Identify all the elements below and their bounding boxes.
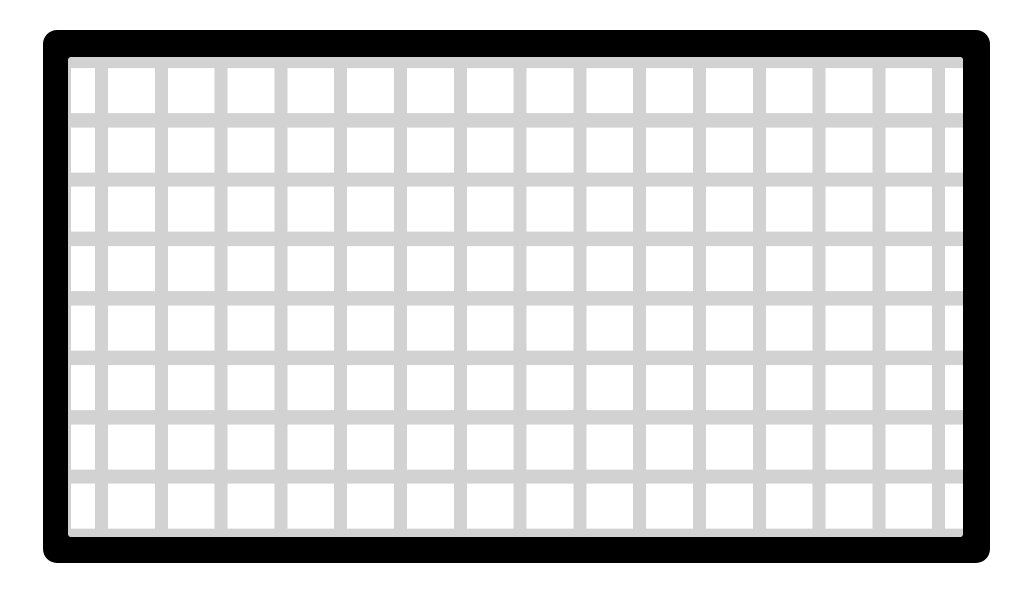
page: { "graphic": { "type": "grid-pattern-ico… (0, 0, 1024, 605)
grid-frame (43, 30, 990, 563)
framed-grid-graphic (0, 0, 1024, 605)
grid-pattern (68, 57, 963, 537)
